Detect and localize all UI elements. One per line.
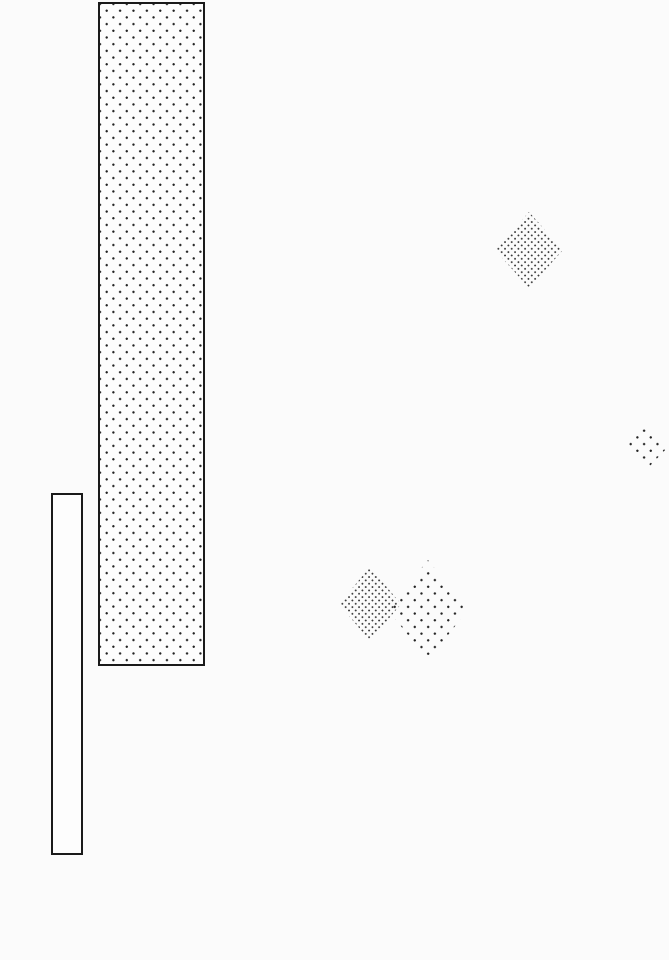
diamond-right-edge bbox=[624, 424, 668, 470]
page-background bbox=[0, 0, 669, 960]
outlined-bar bbox=[51, 493, 83, 855]
dotted-column bbox=[98, 2, 205, 666]
diamond-top-right bbox=[495, 212, 563, 288]
diamond-pair-right bbox=[388, 560, 468, 660]
diamond-pair-left bbox=[339, 567, 401, 641]
